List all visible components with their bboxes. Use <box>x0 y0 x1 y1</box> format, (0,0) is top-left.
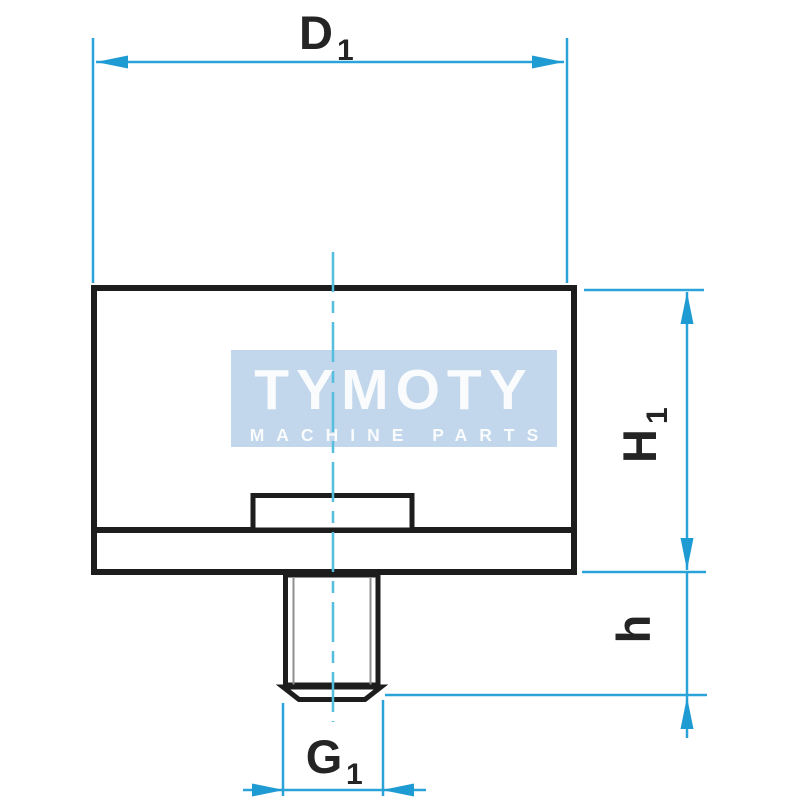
g1-label: G 1 <box>306 730 363 791</box>
g1-arrowhead-right <box>252 784 284 797</box>
g1-label-subscript: 1 <box>346 758 363 791</box>
h1-label-subscript: 1 <box>641 407 674 424</box>
h1-arrowhead-up <box>681 292 694 324</box>
d1-label-base: D <box>299 6 333 59</box>
dimension-h: h <box>385 572 707 738</box>
g1-label-base: G <box>306 730 343 783</box>
h-arrowhead-up <box>681 697 694 729</box>
watermark-tagline: MACHINE PARTS <box>250 425 551 445</box>
dimension-g1: G 1 <box>243 700 426 797</box>
h1-arrowhead-down <box>681 538 694 570</box>
dimension-h1: H 1 <box>582 290 706 572</box>
h1-label-base: H <box>613 429 666 463</box>
h-label-base: h <box>607 615 660 644</box>
d1-arrowhead-left <box>96 56 128 69</box>
d1-label-subscript: 1 <box>337 34 354 67</box>
g1-arrowhead-left <box>382 784 414 797</box>
watermark-brand: TYMOTY <box>254 358 534 422</box>
d1-arrowhead-right <box>532 56 564 69</box>
d1-label: D 1 <box>299 6 354 67</box>
dimension-d1: D 1 <box>93 6 567 283</box>
h1-label: H 1 <box>613 407 674 463</box>
h-label: h <box>607 615 660 644</box>
technical-drawing-page: TYMOTY MACHINE PARTS D 1 H 1 <box>0 0 800 800</box>
watermark: TYMOTY MACHINE PARTS <box>231 350 557 447</box>
vibration-mount-drawing: TYMOTY MACHINE PARTS D 1 H 1 <box>0 0 800 800</box>
